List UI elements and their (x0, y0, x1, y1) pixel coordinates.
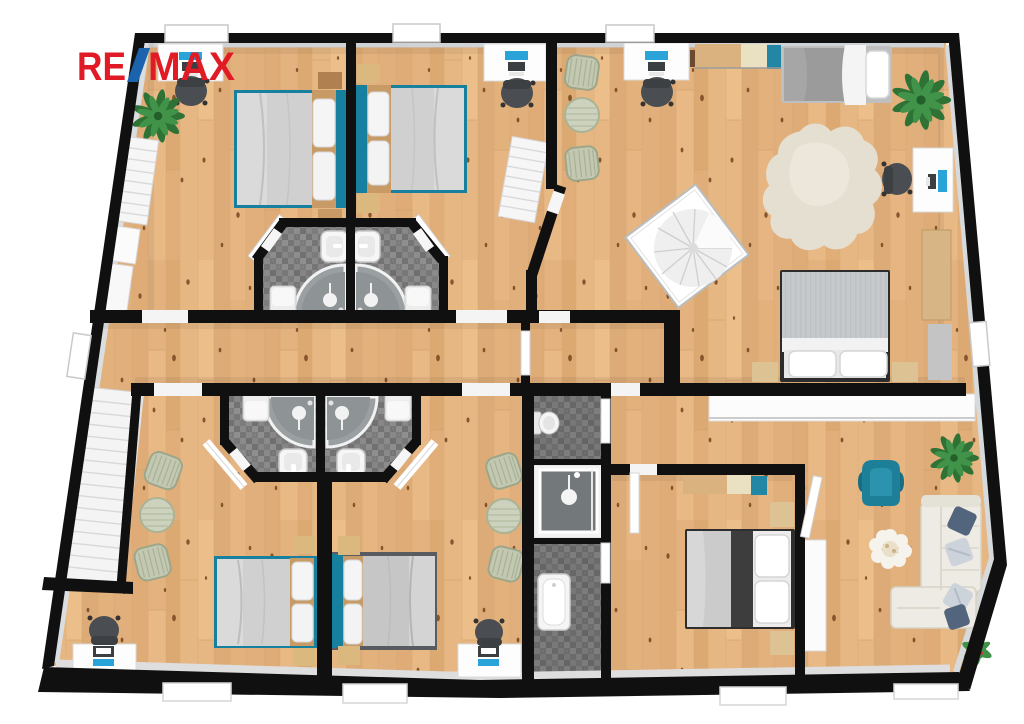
svg-text:MAX: MAX (148, 45, 235, 89)
svg-text:RE: RE (77, 45, 126, 89)
